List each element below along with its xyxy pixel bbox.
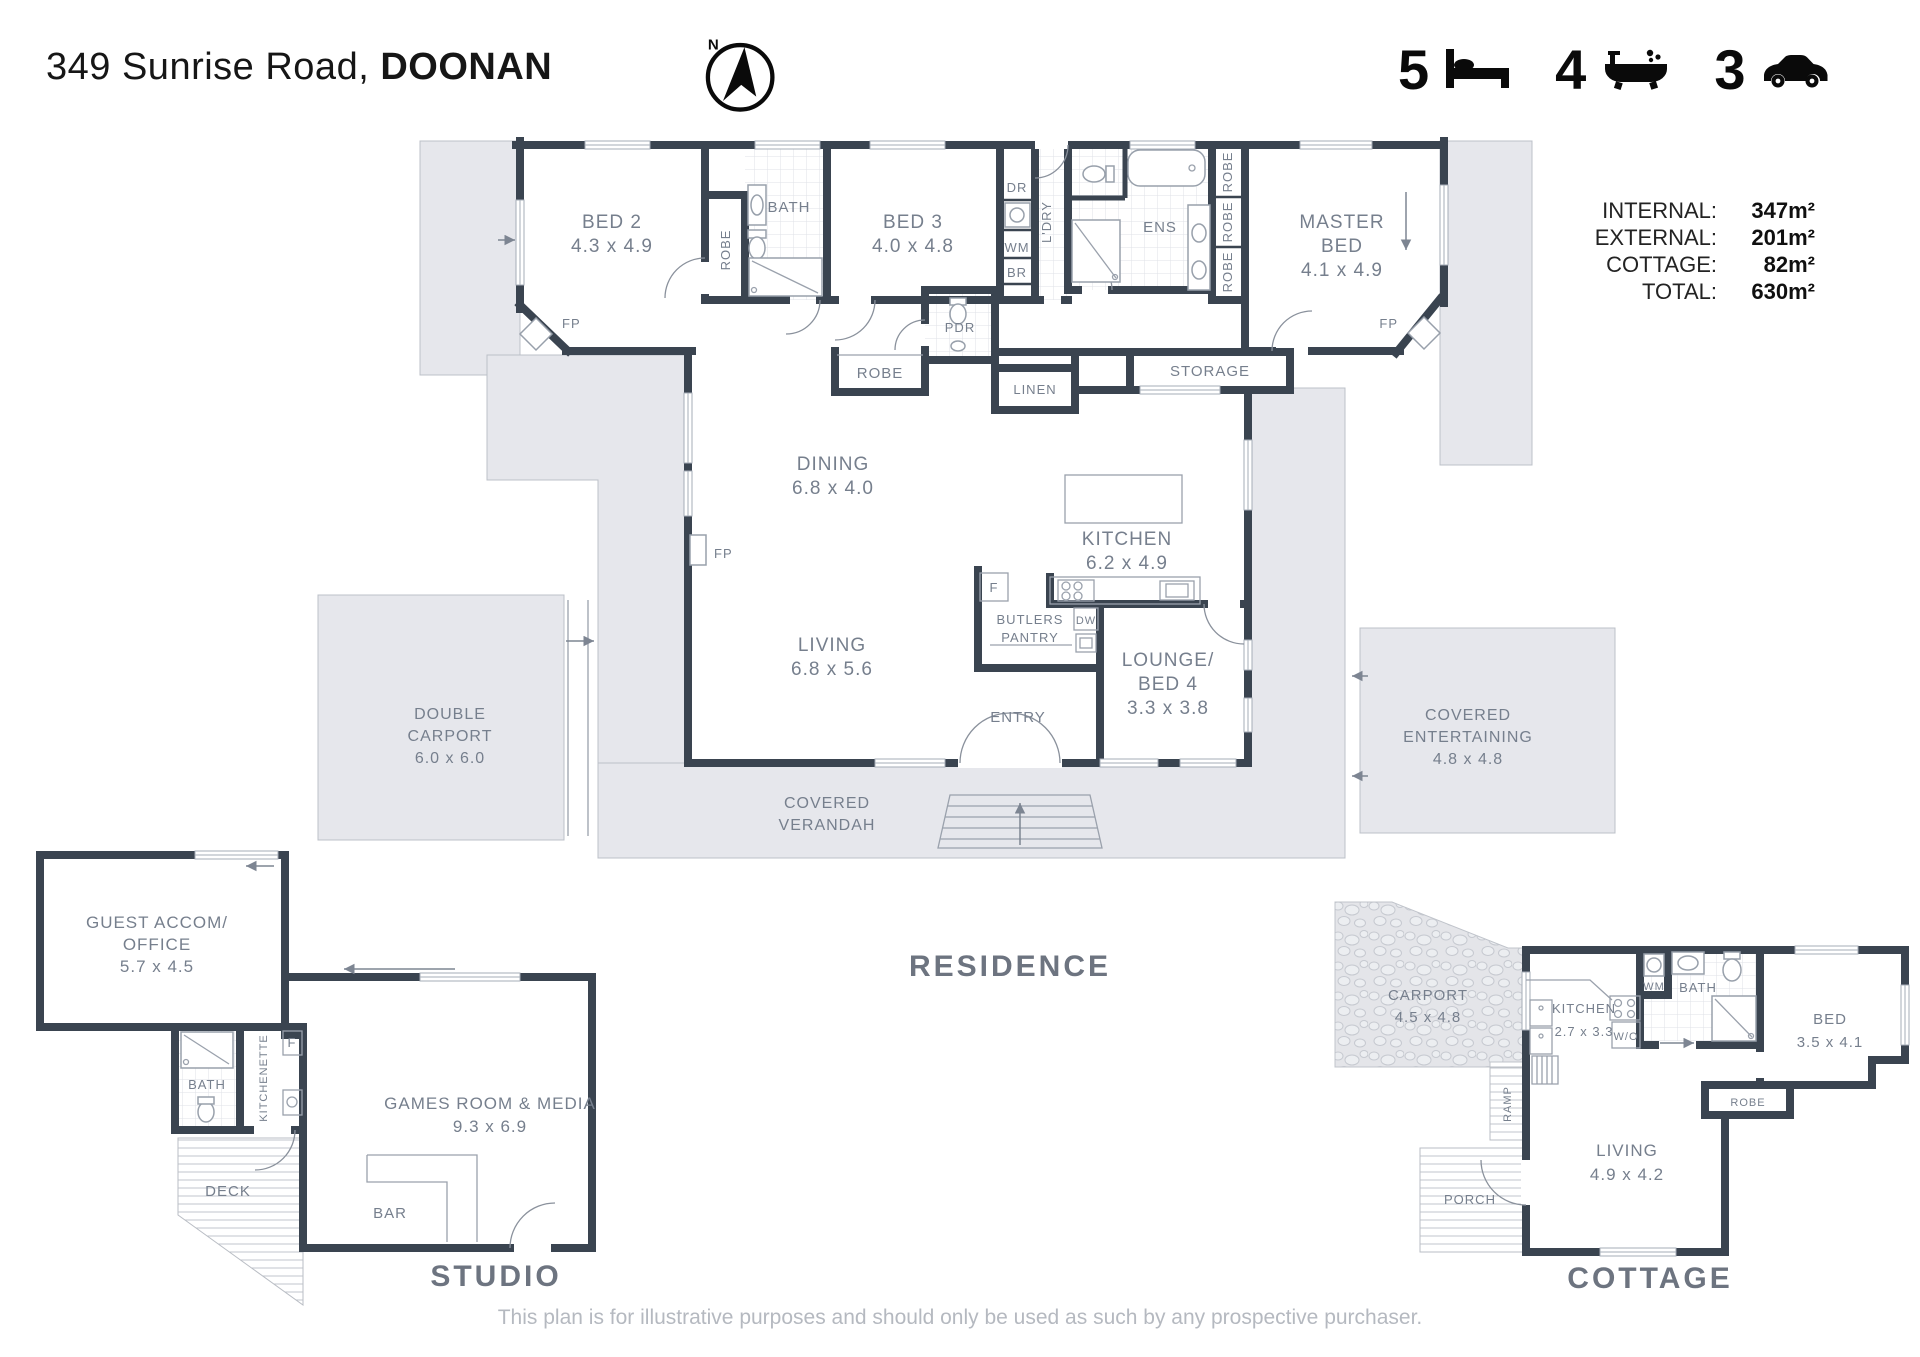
floorplan-drawing: BED 2 4.3 x 4.9 BED 3 4.0 x 4.8 MASTER B… xyxy=(0,0,1920,1357)
robe-label-3: ROBE xyxy=(1220,252,1235,293)
robe-hall-label: ROBE xyxy=(857,365,904,382)
carport-label-2: CARPORT xyxy=(408,728,493,745)
dw-label: DW xyxy=(1076,615,1096,627)
room-dims-games: 9.3 x 6.9 xyxy=(453,1117,527,1136)
fp-label-living: FP xyxy=(714,546,733,561)
butlers-label-1: BUTLERS xyxy=(997,612,1064,627)
dr-label: DR xyxy=(1007,180,1028,195)
cottage-robe-label: ROBE xyxy=(1730,1097,1765,1109)
entry-label: ENTRY xyxy=(990,709,1046,726)
room-dims-lounge: 3.3 x 3.8 xyxy=(1127,698,1209,719)
eave-left xyxy=(420,141,520,375)
bar-label: BAR xyxy=(373,1205,407,1222)
cottage-living-dims: 4.9 x 4.2 xyxy=(1590,1165,1664,1184)
room-label-kitchen: KITCHEN xyxy=(1082,529,1172,550)
porch-label: PORCH xyxy=(1444,1192,1496,1207)
br-label: BR xyxy=(1007,265,1027,280)
kitchenette-label: KITCHENETTE xyxy=(258,1034,270,1121)
studio-fridge-label: F xyxy=(288,1035,297,1050)
room-dims-guest: 5.7 x 4.5 xyxy=(120,957,194,976)
room-dims-living: 6.8 x 5.6 xyxy=(791,659,873,680)
cottage-kitchen-label: KITCHEN xyxy=(1552,1001,1616,1016)
room-label-master-1: MASTER xyxy=(1299,212,1384,233)
cottage-wo-label: W/O xyxy=(1614,1031,1639,1043)
studio-section-label: STUDIO xyxy=(396,1260,596,1294)
cottage-plan: CARPORT 4.5 x 4.8 KITCHEN 2.7 x 3.3 WM B… xyxy=(1335,902,1909,1256)
room-label-lounge-2: BED 4 xyxy=(1138,674,1198,695)
cottage-carport-area xyxy=(1335,902,1526,1067)
room-label-living: LIVING xyxy=(798,635,866,656)
room-label-guest-1: GUEST ACCOM/ xyxy=(86,913,228,932)
bath-label: BATH xyxy=(768,199,811,216)
cottage-wm-label: WM xyxy=(1643,981,1665,993)
room-dims-bed3: 4.0 x 4.8 xyxy=(872,236,954,257)
ldry-label: L'DRY xyxy=(1039,201,1054,243)
carport-dims: 6.0 x 6.0 xyxy=(415,750,485,767)
residence-plan: BED 2 4.3 x 4.9 BED 3 4.0 x 4.8 MASTER B… xyxy=(318,140,1615,858)
deck-label: DECK xyxy=(205,1183,251,1200)
linen-label: LINEN xyxy=(1013,382,1056,397)
cottage-bed-label: BED xyxy=(1813,1011,1847,1028)
ramp-label: RAMP xyxy=(1502,1086,1514,1122)
ens-label: ENS xyxy=(1143,219,1177,236)
cottage-carport-label: CARPORT xyxy=(1388,987,1468,1004)
fridge-label: F xyxy=(990,580,999,595)
cottage-bed-dims: 3.5 x 4.1 xyxy=(1797,1034,1864,1051)
room-dims-kitchen: 6.2 x 4.9 xyxy=(1086,553,1168,574)
studio-bath-label: BATH xyxy=(188,1077,226,1092)
robe-label-1: ROBE xyxy=(1220,152,1235,193)
cottage-living-label: LIVING xyxy=(1596,1141,1658,1160)
room-dims-bed2: 4.3 x 4.9 xyxy=(571,236,653,257)
wm-label: WM xyxy=(1004,240,1029,255)
fp-label-master: FP xyxy=(1379,316,1398,331)
entertaining-label-1: COVERED xyxy=(1425,707,1511,724)
robe-label-bed2: ROBE xyxy=(718,230,733,271)
cottage-bath-label: BATH xyxy=(1679,980,1717,995)
verandah-label-2: VERANDAH xyxy=(779,817,876,834)
entertaining-label-2: ENTERTAINING xyxy=(1403,729,1533,746)
room-label-guest-2: OFFICE xyxy=(123,935,191,954)
room-label-lounge-1: LOUNGE/ xyxy=(1122,650,1215,671)
eave-right xyxy=(1440,141,1532,465)
room-label-dining: DINING xyxy=(797,454,870,475)
cottage-carport-dims: 4.5 x 4.8 xyxy=(1395,1009,1462,1026)
floorplan-page: 349 Sunrise Road, DOONAN N 5 4 3 xyxy=(0,0,1920,1357)
fp-label-bed2: FP xyxy=(562,316,581,331)
storage-label: STORAGE xyxy=(1170,363,1250,380)
residence-section-label: RESIDENCE xyxy=(880,950,1140,984)
room-label-bed2: BED 2 xyxy=(582,212,642,233)
studio-plan: GUEST ACCOM/ OFFICE 5.7 x 4.5 BATH KITCH… xyxy=(40,851,596,1305)
pdr-label: PDR xyxy=(945,320,975,335)
room-label-master-2: BED xyxy=(1321,236,1363,257)
room-dims-master: 4.1 x 4.9 xyxy=(1301,260,1383,281)
verandah-label-1: COVERED xyxy=(784,795,870,812)
room-label-games: GAMES ROOM & MEDIA xyxy=(384,1094,596,1113)
robe-label-2: ROBE xyxy=(1220,202,1235,243)
cottage-section-label: COTTAGE xyxy=(1540,1262,1760,1296)
covered-verandah-area xyxy=(598,388,1345,858)
carport-label-1: DOUBLE xyxy=(414,706,486,723)
cottage-kitchen-dims: 2.7 x 3.3 xyxy=(1555,1024,1614,1039)
room-label-bed3: BED 3 xyxy=(883,212,943,233)
entertaining-dims: 4.8 x 4.8 xyxy=(1433,751,1503,768)
disclaimer-text: This plan is for illustrative purposes a… xyxy=(0,1306,1920,1330)
butlers-label-2: PANTRY xyxy=(1001,630,1059,645)
room-dims-dining: 6.8 x 4.0 xyxy=(792,478,874,499)
deck-area xyxy=(178,1138,303,1305)
